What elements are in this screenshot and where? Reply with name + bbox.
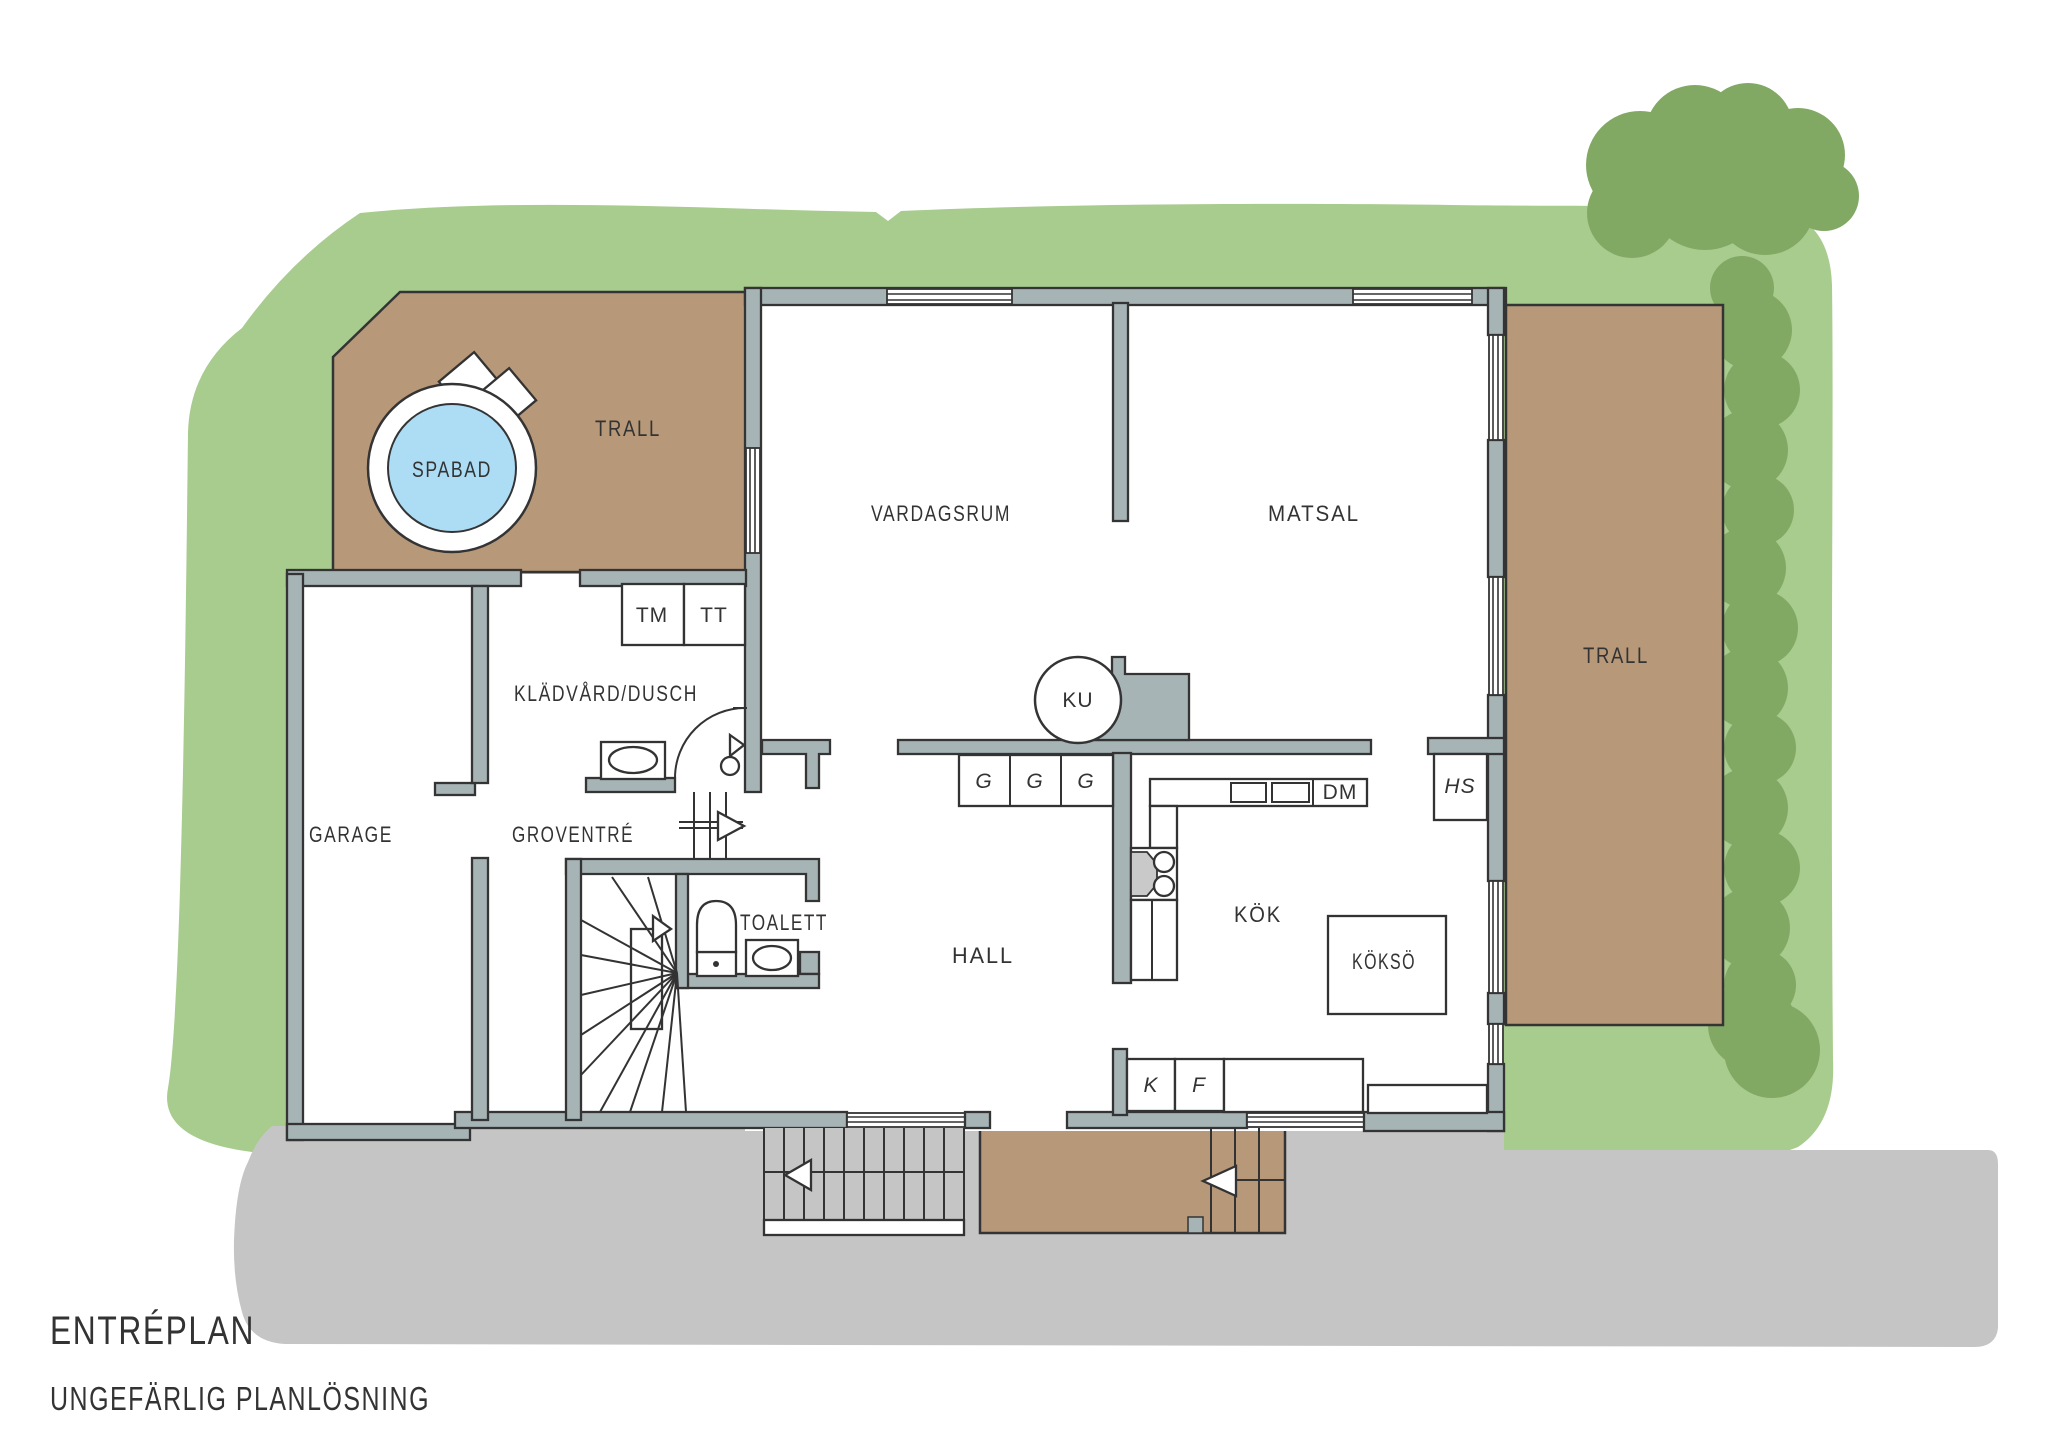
svg-text:G: G bbox=[975, 770, 992, 793]
svg-text:ENTRÉPLAN: ENTRÉPLAN bbox=[50, 1308, 255, 1353]
svg-text:GARAGE: GARAGE bbox=[309, 822, 393, 847]
svg-text:TOALETT: TOALETT bbox=[740, 910, 828, 935]
svg-text:KÖK: KÖK bbox=[1234, 902, 1282, 927]
svg-text:HALL: HALL bbox=[952, 943, 1014, 968]
svg-text:KU: KU bbox=[1062, 689, 1093, 712]
svg-text:KÖKSÖ: KÖKSÖ bbox=[1352, 949, 1416, 974]
svg-text:VARDAGSRUM: VARDAGSRUM bbox=[871, 501, 1011, 526]
svg-text:TT: TT bbox=[700, 604, 728, 627]
svg-text:UNGEFÄRLIG PLANLÖSNING: UNGEFÄRLIG PLANLÖSNING bbox=[50, 1380, 430, 1417]
svg-text:HS: HS bbox=[1444, 775, 1475, 798]
svg-text:KLÄDVÅRD/DUSCH: KLÄDVÅRD/DUSCH bbox=[514, 681, 698, 706]
svg-text:DM: DM bbox=[1323, 781, 1358, 804]
svg-text:MATSAL: MATSAL bbox=[1268, 501, 1360, 526]
svg-text:TRALL: TRALL bbox=[595, 416, 661, 441]
svg-text:K: K bbox=[1143, 1074, 1158, 1097]
svg-text:TRALL: TRALL bbox=[1583, 643, 1649, 668]
svg-text:TM: TM bbox=[636, 604, 668, 627]
svg-text:GROVENTRÉ: GROVENTRÉ bbox=[512, 822, 634, 847]
svg-text:SPABAD: SPABAD bbox=[412, 457, 492, 482]
svg-text:F: F bbox=[1192, 1074, 1206, 1097]
svg-text:G: G bbox=[1077, 770, 1094, 793]
svg-text:G: G bbox=[1026, 770, 1043, 793]
